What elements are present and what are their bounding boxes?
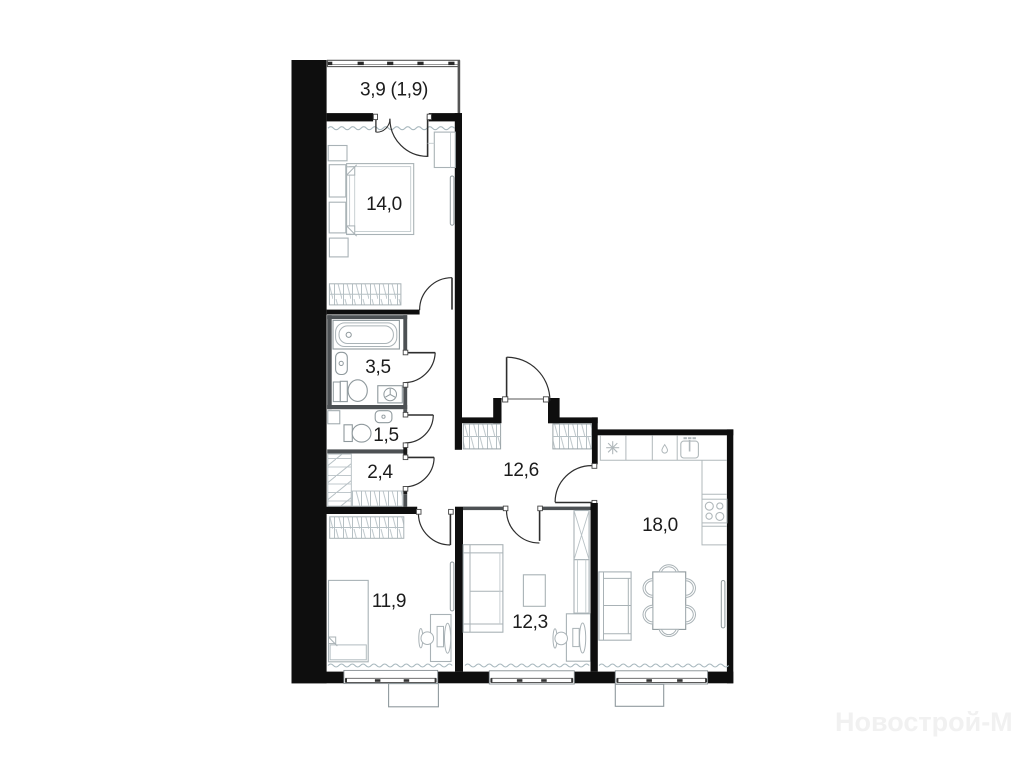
svg-text:3,5: 3,5 (365, 357, 391, 378)
svg-text:18,0: 18,0 (642, 515, 678, 536)
svg-text:12,6: 12,6 (503, 460, 539, 481)
svg-text:12,3: 12,3 (512, 612, 548, 633)
svg-text:1,5: 1,5 (373, 425, 399, 446)
svg-text:3,9 (1,9): 3,9 (1,9) (360, 80, 428, 101)
svg-text:11,9: 11,9 (372, 591, 406, 612)
svg-text:Новострой-М: Новострой-М (835, 707, 1013, 737)
svg-text:14,0: 14,0 (366, 194, 402, 215)
svg-text:2,4: 2,4 (367, 462, 393, 483)
